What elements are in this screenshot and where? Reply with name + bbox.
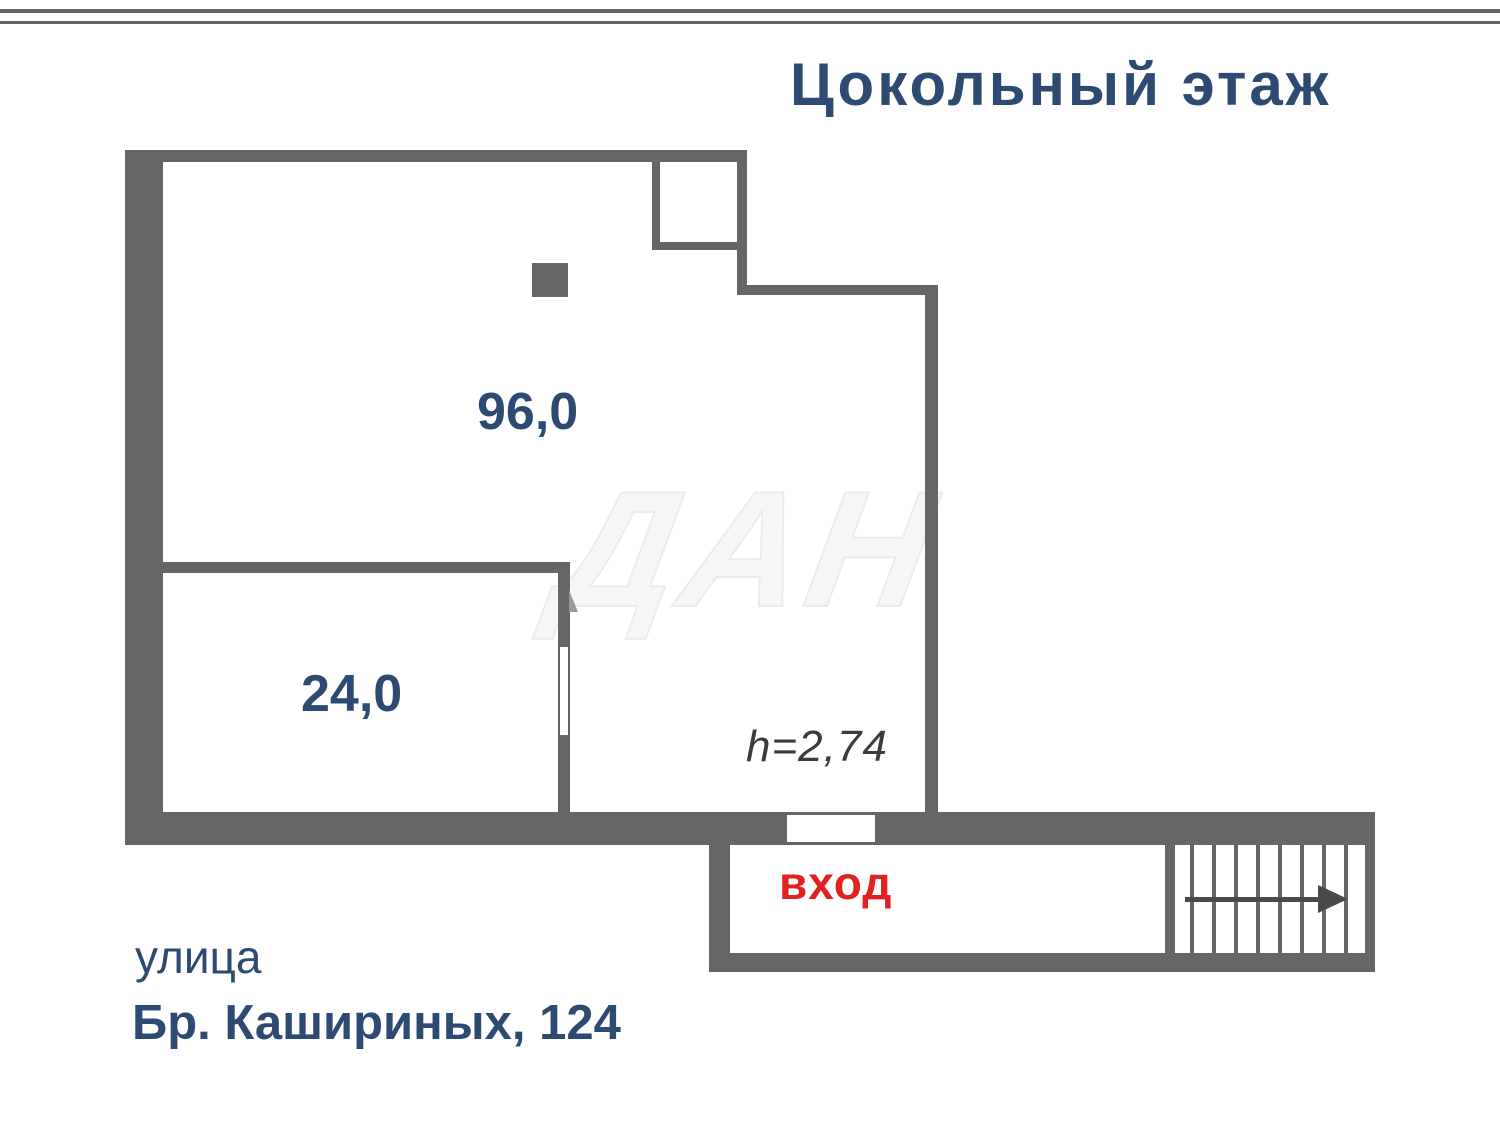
stairs-arrow-head-icon [1318,885,1348,913]
column-pillar [532,263,568,297]
wall-exterior-right [925,285,938,845]
watermark-text: ДАН [543,455,952,644]
street-label: улица [135,930,261,984]
wall-stairs-right [1365,845,1375,957]
wall-bay-bottom [652,242,747,250]
floor-plan-canvas: ДАН Цокольный этаж 96,0 24,0 h=2,74 вход… [0,0,1500,1125]
wall-exterior-top [125,150,747,162]
wall-small-room-top [163,562,570,573]
room-small-area-label: 24,0 [301,664,402,724]
interior-door-opening [560,647,568,735]
entrance-label: вход [779,856,892,910]
floor-title: Цокольный этаж [790,50,1331,119]
window-glazing-bar [0,21,1500,24]
door-leaf-icon [569,590,578,612]
address-label: Бр. Кашириных, 124 [132,995,621,1051]
wall-bay-left [652,162,660,250]
wall-stairs-divider [1165,845,1175,953]
entrance-door-opening [787,815,875,842]
wall-exterior-bottom [125,812,1375,845]
window-opening [0,0,313,31]
wall-exterior-left [125,150,163,845]
window-glazing-bar [0,9,1500,13]
room-large-area-label: 96,0 [477,382,578,442]
wall-bay-right [737,162,747,295]
stairs-direction-arrow [1185,897,1320,902]
wall-vestibule-bottom [709,953,1375,972]
wall-step-top [737,285,938,295]
ceiling-height-label: h=2,74 [746,722,888,772]
